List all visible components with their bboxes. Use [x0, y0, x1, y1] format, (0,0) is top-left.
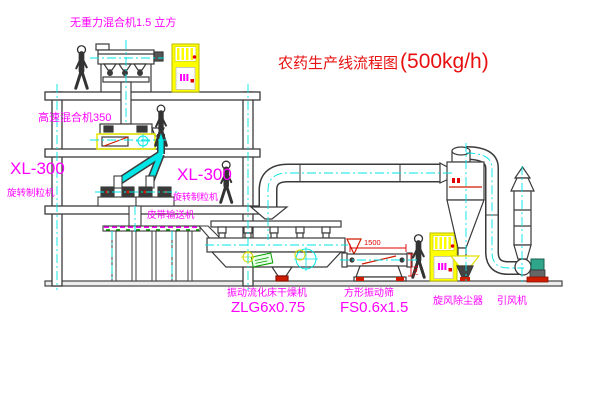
person-figure-1 [76, 46, 87, 88]
granulator-unit-1 [98, 176, 136, 206]
label-dryer-model: ZLG6x0.75 [231, 299, 305, 316]
control-cabinet-upper [172, 44, 199, 92]
label-gravity-mixer: 无重力混合机1.5 立方 [70, 15, 176, 29]
high-speed-mixer [97, 124, 164, 149]
label-granulator-left-model: XL-300 [10, 159, 65, 178]
drawing-title: 农药生产线流程图(500kg/h) [278, 50, 489, 73]
granulator-unit-2 [136, 176, 174, 206]
label-belt-conveyor: 皮带输送机 [147, 209, 195, 221]
exhaust-duct [251, 163, 451, 219]
label-sieve-model: FS0.6x1.5 [340, 299, 408, 316]
dimension-sieve-height: 741 [413, 265, 420, 276]
label-fan: 引风机 [497, 294, 527, 307]
belt-conveyor [103, 226, 221, 281]
process-flow-diagram: 农药生产线流程图(500kg/h) 无重力混合机1.5 立方 高速混合机350 … [0, 0, 600, 403]
label-granulator-left-name: 旋转制粒机 [7, 187, 55, 199]
label-high-speed-mixer: 高速混合机350 [38, 110, 111, 124]
label-granulator-right-name: 旋转制粒机 [173, 191, 218, 202]
exhaust-stack [511, 167, 534, 259]
dimension-sieve-length: 1500 [364, 238, 381, 247]
label-dryer-name: 振动流化床干燥机 [227, 286, 307, 299]
label-sieve-name: 方形振动筛 [344, 286, 394, 299]
label-granulator-right-model: XL-300 [177, 165, 232, 184]
induced-draft-fan [515, 259, 548, 282]
cad-drawing-canvas: 农药生产线流程图(500kg/h) 无重力混合机1.5 立方 高速混合机350 … [0, 0, 600, 403]
fluid-bed-dryer [207, 221, 345, 281]
label-cyclone: 旋风除尘器 [433, 294, 483, 307]
ground-line [45, 281, 562, 286]
